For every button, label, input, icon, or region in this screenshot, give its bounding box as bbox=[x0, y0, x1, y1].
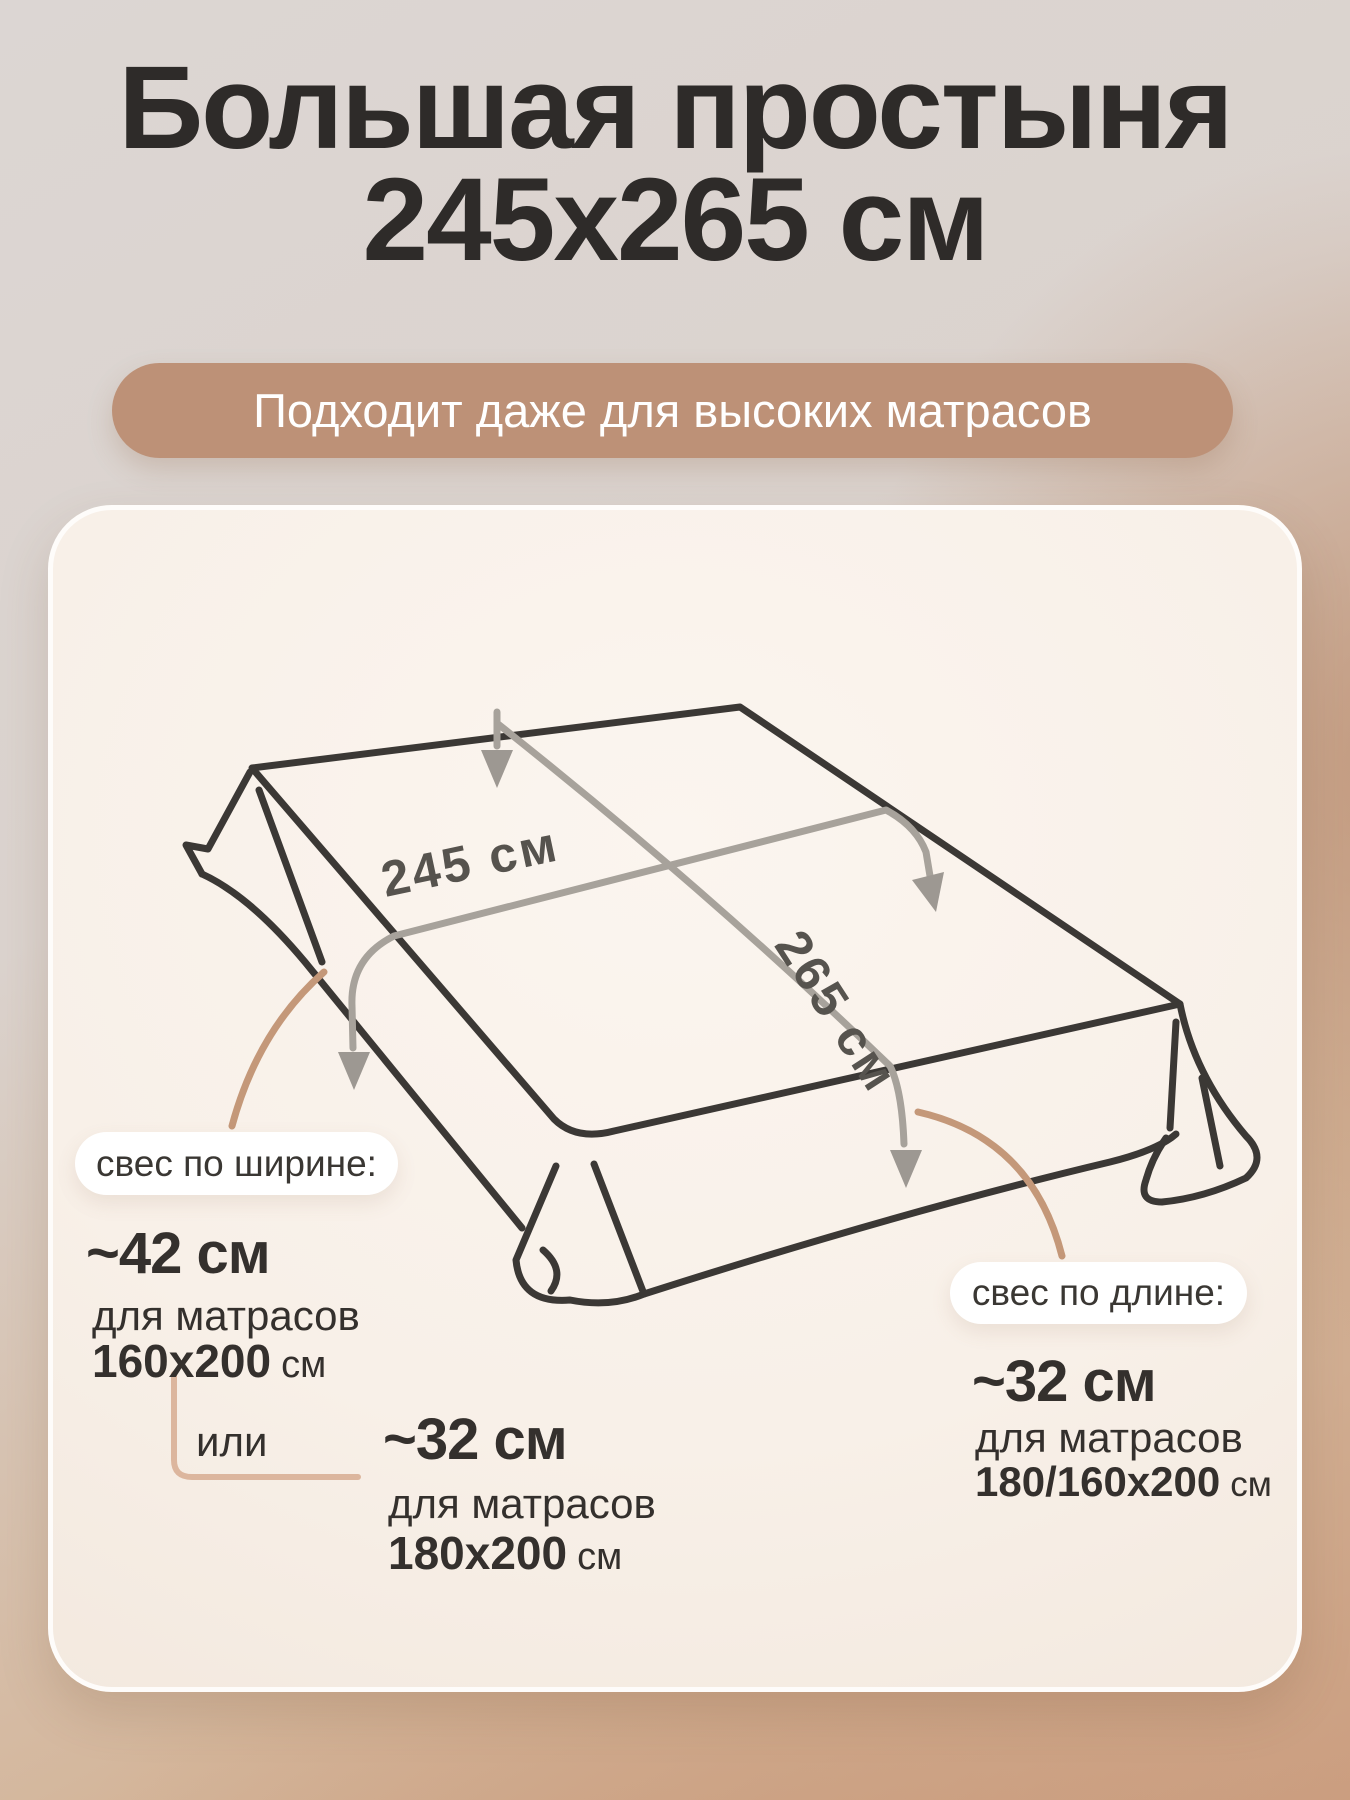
size-unit: см bbox=[1230, 1465, 1272, 1504]
overhang-width-pill: свес по ширине: bbox=[75, 1132, 398, 1195]
mattress-size: 160х200 bbox=[92, 1335, 271, 1387]
size-unit: см bbox=[577, 1536, 622, 1578]
arrow-down-icon bbox=[338, 1052, 370, 1090]
overhang-length-pill: свес по длине: bbox=[950, 1262, 1247, 1324]
size-unit: см bbox=[281, 1344, 326, 1386]
overhang-width-pill-label: свес по ширине: bbox=[96, 1143, 377, 1185]
width-callout-curve bbox=[232, 972, 324, 1126]
overhang-length-value: ~32 см bbox=[972, 1348, 1156, 1415]
infographic-page: Большая простыня 245х265 см Подходит даж… bbox=[0, 0, 1350, 1800]
callout-curves bbox=[232, 972, 1062, 1256]
overhang-width-size-2: 180х200см bbox=[388, 1526, 622, 1580]
overhang-width-value-2: ~32 см bbox=[383, 1406, 567, 1473]
overhang-width-for-1: для матрасов bbox=[92, 1292, 360, 1340]
arrow-down-icon bbox=[890, 1150, 922, 1188]
sheet-drawing bbox=[0, 0, 1350, 1800]
overhang-length-size: 180/160х200см bbox=[975, 1458, 1272, 1506]
length-callout-curve bbox=[918, 1112, 1062, 1256]
overhang-width-size-1: 160х200см bbox=[92, 1334, 326, 1388]
overhang-width-for-2: для матрасов bbox=[388, 1480, 656, 1528]
sheet-outline bbox=[186, 707, 1257, 1303]
overhang-width-value-1: ~42 см bbox=[86, 1220, 270, 1287]
or-label: или bbox=[196, 1418, 267, 1466]
overhang-length-pill-label: свес по длине: bbox=[972, 1272, 1225, 1314]
arrow-down-icon bbox=[481, 750, 513, 788]
arrow-down-icon bbox=[912, 872, 944, 912]
mattress-size: 180/160х200 bbox=[975, 1458, 1220, 1505]
mattress-size: 180х200 bbox=[388, 1527, 567, 1579]
overhang-length-for: для матрасов bbox=[975, 1414, 1243, 1462]
